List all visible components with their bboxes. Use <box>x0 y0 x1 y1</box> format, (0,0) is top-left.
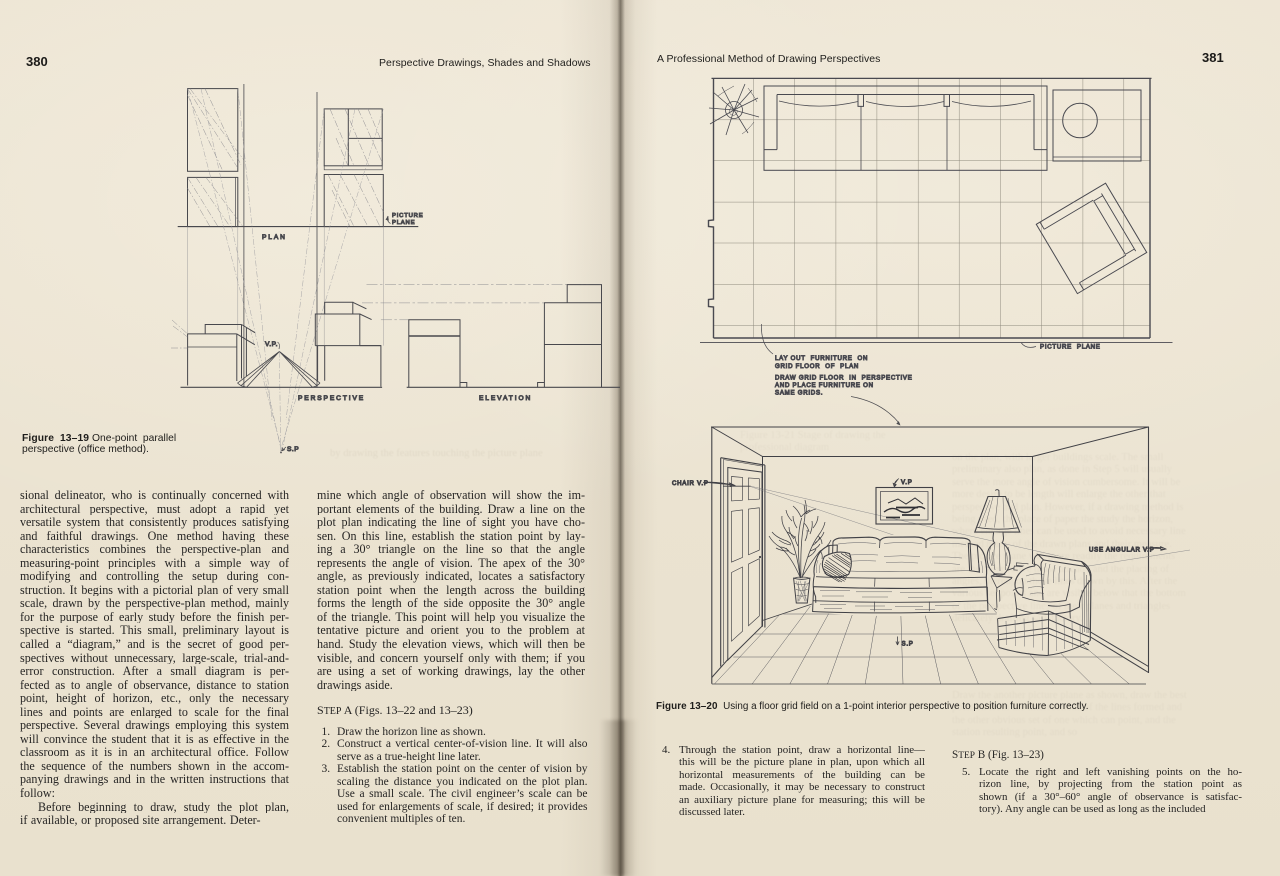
svg-text:CHAIR V.P: CHAIR V.P <box>672 480 709 487</box>
svg-text:V.P: V.P <box>901 479 913 486</box>
svg-text:S.P: S.P <box>902 641 914 648</box>
